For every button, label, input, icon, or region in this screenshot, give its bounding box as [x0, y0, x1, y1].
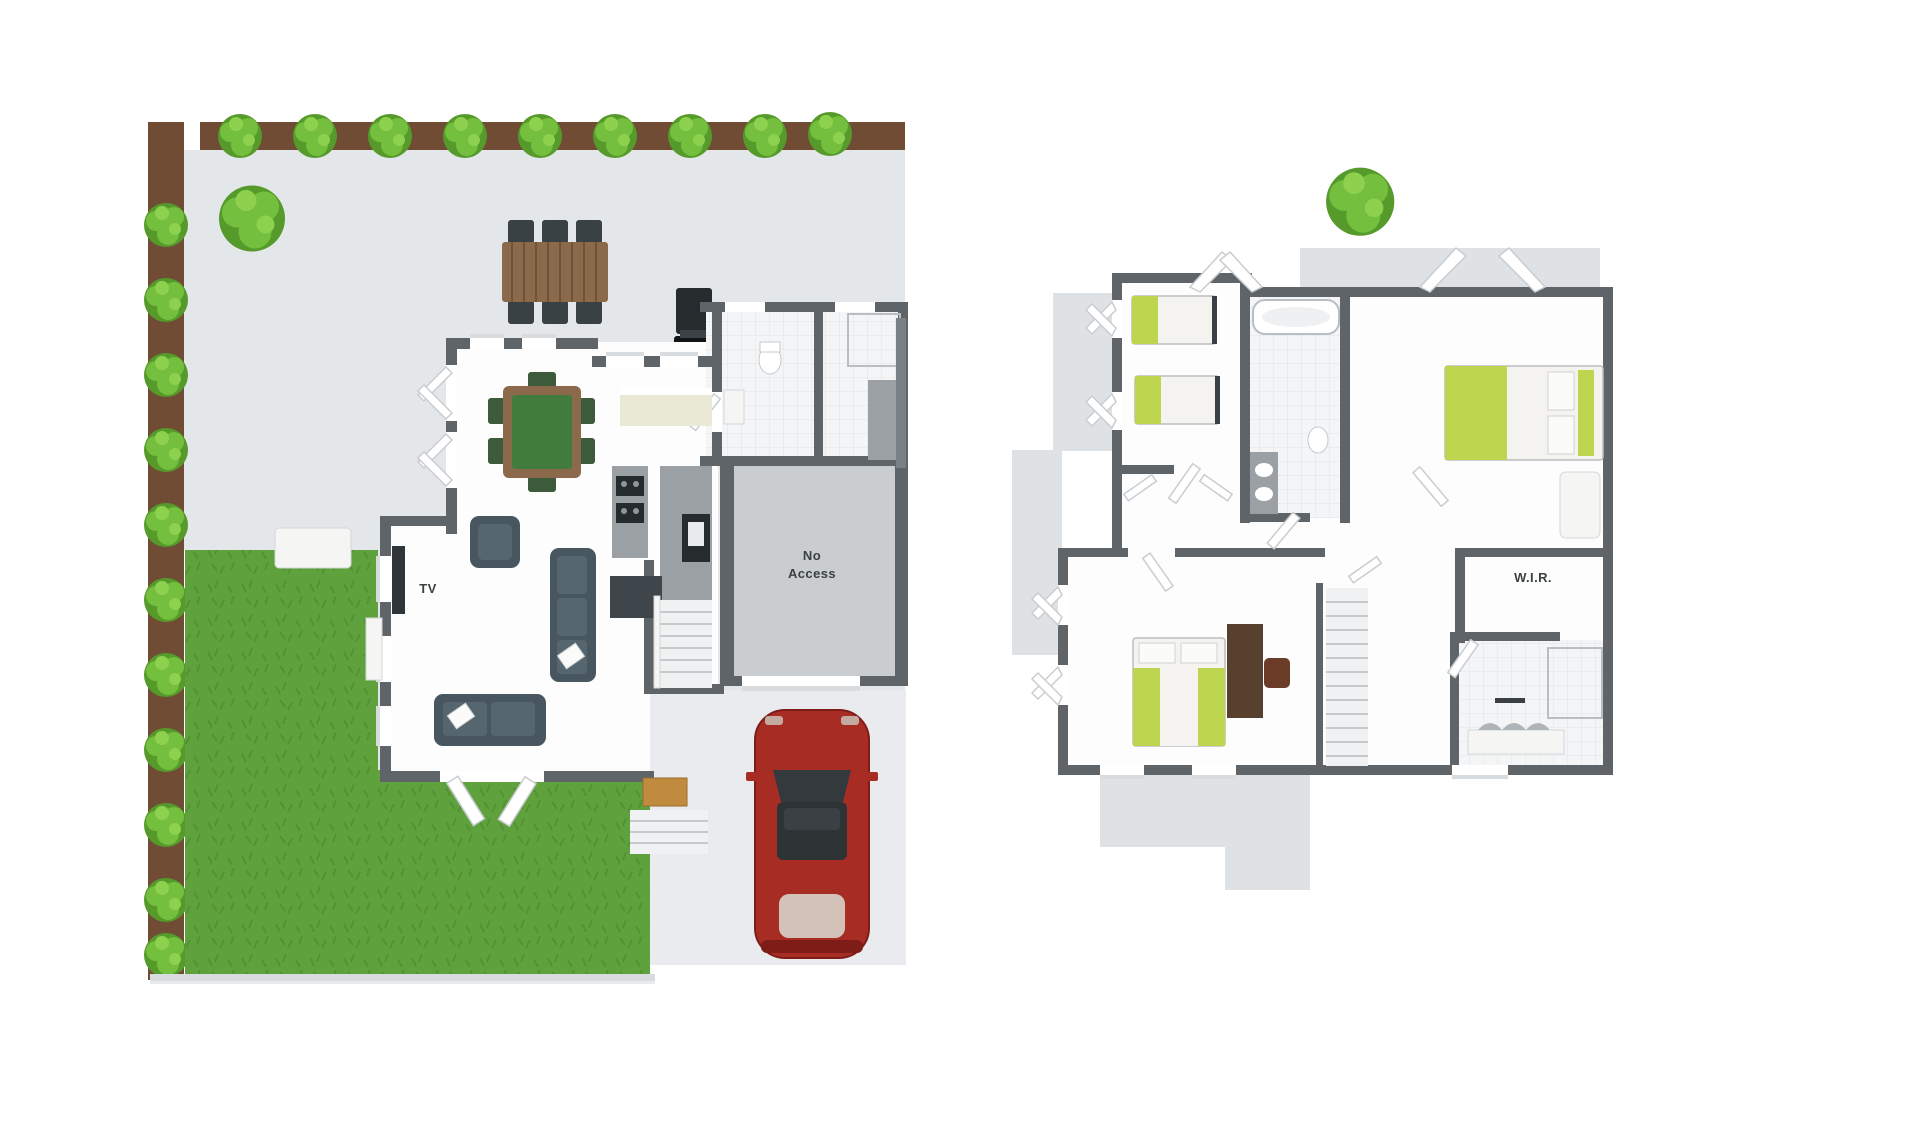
car: [746, 710, 878, 958]
tv-unit: [392, 546, 405, 614]
floorplan-image: BBQ: [0, 0, 1920, 1125]
double-bed-master: [1445, 366, 1603, 460]
double-bed-3: [1133, 638, 1225, 746]
rear-fence: [150, 974, 655, 984]
garden-steps: [630, 810, 708, 854]
side-fence: [896, 318, 906, 468]
armchair: [470, 516, 520, 568]
garden-bench: [275, 528, 351, 568]
sofa-three-seat: [550, 548, 596, 682]
window-seat: [366, 618, 382, 680]
doormat: [643, 778, 687, 806]
tv-label: TV: [419, 581, 436, 596]
single-bed-2: [1135, 376, 1220, 424]
entry-stairs: [654, 596, 712, 688]
single-bed-1: [1132, 296, 1217, 344]
outdoor-dining-set: [502, 220, 608, 324]
bedroom-chaise: [1560, 472, 1600, 538]
upper-stairs: [1326, 588, 1368, 766]
floorplan-svg: BBQ: [0, 0, 1920, 1125]
garage-label-line2: Access: [788, 566, 836, 581]
sofa-two-seat: [434, 694, 546, 746]
upper-floor-plan: W.I.R.: [1012, 248, 1613, 890]
garage-label-line1: No: [803, 548, 821, 563]
indoor-dining-set: [488, 372, 595, 492]
wir-label: W.I.R.: [1514, 570, 1552, 585]
kitchen: [610, 388, 712, 620]
